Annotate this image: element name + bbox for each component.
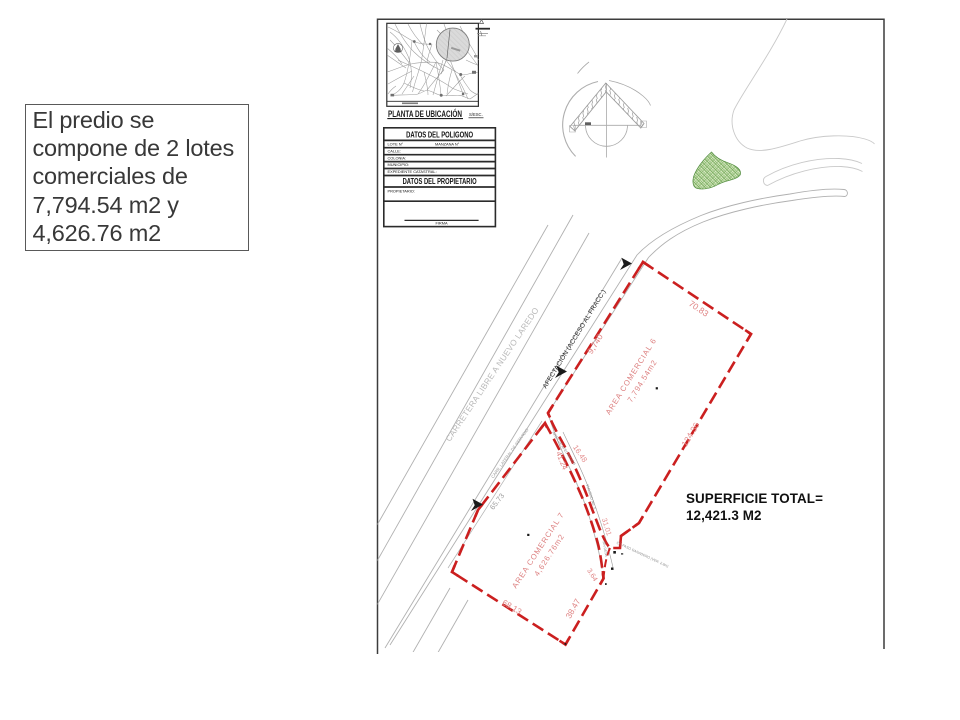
svg-text:EXPEDIENTE CATASTRAL:: EXPEDIENTE CATASTRAL: bbox=[388, 169, 437, 174]
svg-text:S/ESC.: S/ESC. bbox=[469, 112, 483, 117]
svg-text:12,421.3 M2: 12,421.3 M2 bbox=[686, 508, 762, 523]
svg-text:MUNICIPIO:: MUNICIPIO: bbox=[388, 162, 410, 167]
svg-text:CF. PASO GANADERO (VER. 2.8m): CF. PASO GANADERO (VER. 2.8m) bbox=[616, 541, 669, 569]
svg-text:PROPIETARIO:: PROPIETARIO: bbox=[388, 189, 415, 194]
svg-text:124.36: 124.36 bbox=[679, 420, 701, 448]
svg-text:65.73: 65.73 bbox=[488, 491, 506, 511]
svg-text:CARRETERA LIBRE A NUEVO LA: CARRETERA LIBRE A NUEVO LAREDO bbox=[443, 305, 541, 443]
svg-text:FIRMA: FIRMA bbox=[435, 221, 448, 226]
svg-text:3.64: 3.64 bbox=[585, 568, 598, 583]
svg-text:MANZANA N°: MANZANA N° bbox=[435, 141, 460, 146]
svg-text:COLONIA:: COLONIA: bbox=[388, 155, 407, 160]
svg-text:70.83: 70.83 bbox=[687, 298, 711, 318]
svg-text:SUPERFICIE TOTAL=: SUPERFICIE TOTAL= bbox=[686, 491, 823, 506]
svg-text:9,740: 9,740 bbox=[585, 332, 605, 356]
svg-text:DATOS DEL POLIGONO: DATOS DEL POLIGONO bbox=[406, 130, 473, 140]
svg-text:CALLE:: CALLE: bbox=[388, 148, 401, 153]
svg-text:38.47: 38.47 bbox=[563, 597, 582, 620]
svg-text:PLANTA DE UBICACIÓN: PLANTA DE UBICACIÓN bbox=[388, 108, 462, 119]
svg-text:68.13: 68.13 bbox=[500, 597, 523, 617]
svg-text:DATOS DEL PROPIETARIO: DATOS DEL PROPIETARIO bbox=[403, 176, 477, 186]
svg-text:LOTE N°: LOTE N° bbox=[388, 141, 404, 146]
